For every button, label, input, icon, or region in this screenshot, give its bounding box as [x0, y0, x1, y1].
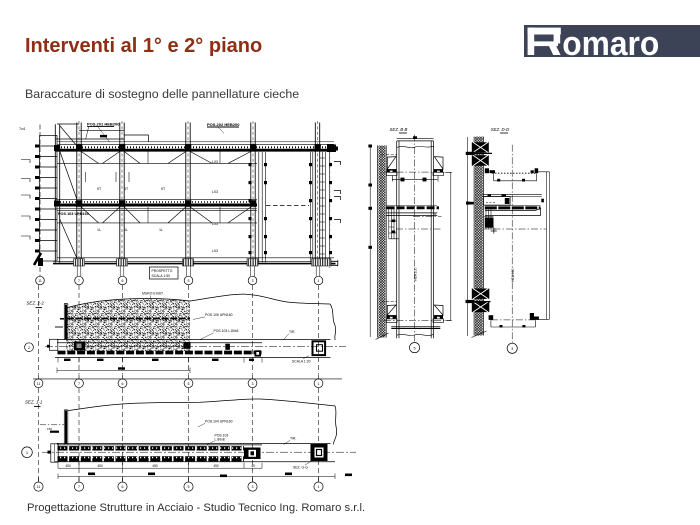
- svg-text:3: 3: [511, 347, 513, 351]
- svg-text:POS.105 UPN160: POS.105 UPN160: [205, 313, 233, 317]
- svg-text:SCALA 1:20: SCALA 1:20: [292, 360, 311, 364]
- svg-text:3: 3: [252, 279, 254, 283]
- svg-text:450: 450: [152, 464, 158, 468]
- svg-text:5: 5: [188, 485, 190, 489]
- svg-text:L03: L03: [212, 160, 218, 164]
- svg-text:L.80x8: L.80x8: [215, 438, 225, 442]
- svg-text:7: 7: [78, 279, 80, 283]
- svg-text:1L: 1L: [159, 228, 163, 232]
- svg-text:PROSPETTO: PROSPETTO: [152, 269, 173, 273]
- svg-text:6: 6: [122, 279, 124, 283]
- svg-text:450: 450: [97, 464, 103, 468]
- svg-text:1: 1: [318, 485, 320, 489]
- svg-text:POS.104 UPN160: POS.104 UPN160: [205, 420, 233, 424]
- svg-text:11: 11: [37, 382, 41, 386]
- svg-text:3: 3: [252, 382, 254, 386]
- svg-text:6: 6: [122, 382, 124, 386]
- svg-text:9T: 9T: [97, 187, 102, 191]
- svg-text:1: 1: [318, 382, 320, 386]
- svg-text:MURO ESIST.: MURO ESIST.: [142, 292, 164, 296]
- svg-text:150: 150: [47, 427, 52, 431]
- svg-text:11: 11: [38, 279, 42, 283]
- svg-text:POS.201 HEB200: POS.201 HEB200: [87, 122, 120, 127]
- svg-text:450: 450: [65, 464, 71, 468]
- svg-text:9T: 9T: [124, 187, 129, 191]
- svg-text:1: 1: [318, 279, 320, 283]
- svg-text:2: 2: [28, 346, 30, 350]
- svg-text:9T: 9T: [161, 187, 166, 191]
- svg-text:1L: 1L: [97, 228, 101, 232]
- svg-text:3: 3: [252, 485, 254, 489]
- svg-text:L03: L03: [212, 190, 218, 194]
- svg-text:HEA 200: HEA 200: [414, 268, 418, 281]
- svg-text:5: 5: [188, 382, 190, 386]
- svg-text:7: 7: [78, 485, 80, 489]
- svg-text:SEZ. D-D: SEZ. D-D: [491, 127, 509, 132]
- svg-text:5: 5: [414, 346, 416, 350]
- svg-text:1: 1: [26, 450, 29, 455]
- svg-text:SEZ. G-G: SEZ. G-G: [293, 466, 308, 470]
- svg-text:1L: 1L: [124, 228, 128, 232]
- svg-text:L03: L03: [212, 249, 218, 253]
- svg-text:45: 45: [251, 464, 255, 468]
- svg-text:POS.202 HEB200: POS.202 HEB200: [207, 122, 240, 127]
- svg-text:SCALA 1:50: SCALA 1:50: [152, 274, 171, 278]
- svg-text:POS.103 UPN160: POS.103 UPN160: [58, 212, 89, 216]
- svg-text:HEA 160: HEA 160: [511, 269, 515, 282]
- svg-text:6: 6: [122, 485, 124, 489]
- svg-text:450: 450: [213, 464, 219, 468]
- svg-text:7x4: 7x4: [19, 127, 25, 131]
- svg-text:L03: L03: [212, 222, 218, 226]
- svg-text:SEZ. B-B: SEZ. B-B: [390, 127, 408, 132]
- svg-text:SEZ. 2-2: SEZ. 2-2: [27, 301, 45, 306]
- svg-text:TIR.: TIR.: [289, 330, 295, 334]
- svg-text:7: 7: [78, 382, 80, 386]
- svg-text:5: 5: [188, 279, 190, 283]
- svg-text:11: 11: [37, 485, 41, 489]
- svg-text:POS.103 L.80x8: POS.103 L.80x8: [214, 329, 239, 333]
- svg-text:TIR.: TIR.: [290, 437, 296, 441]
- svg-text:SEZ. 1-1: SEZ. 1-1: [25, 400, 43, 405]
